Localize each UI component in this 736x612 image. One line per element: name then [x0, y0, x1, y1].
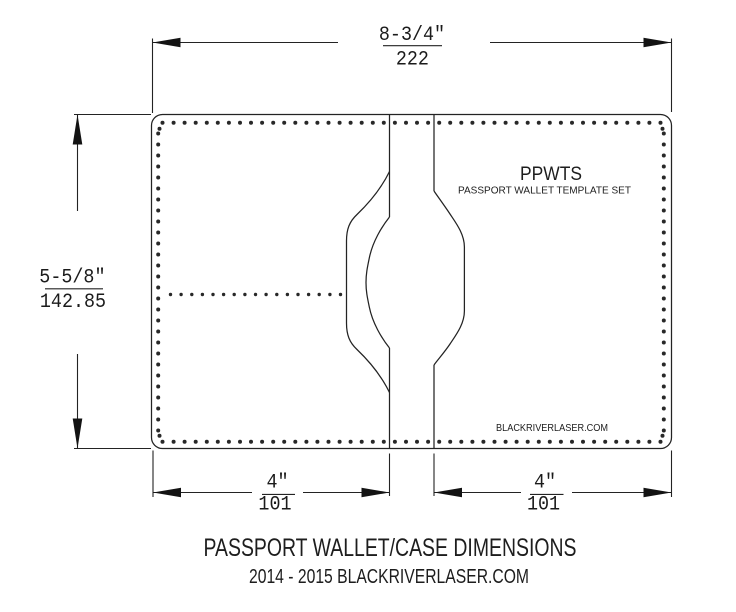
svg-text:PPWTS: PPWTS — [520, 164, 582, 185]
svg-text:8-3/4": 8-3/4" — [379, 23, 445, 46]
svg-text:101: 101 — [258, 493, 291, 516]
svg-text:2014 - 2015 BLACKRIVERLASER.CO: 2014 - 2015 BLACKRIVERLASER.COM — [249, 566, 529, 588]
svg-text:PASSPORT WALLET TEMPLATE SET: PASSPORT WALLET TEMPLATE SET — [458, 185, 632, 197]
svg-text:5-5/8": 5-5/8" — [39, 266, 105, 289]
svg-text:4": 4" — [534, 471, 556, 494]
svg-text:BLACKRIVERLASER.COM: BLACKRIVERLASER.COM — [496, 422, 608, 434]
svg-text:142.85: 142.85 — [40, 290, 106, 313]
svg-text:4": 4" — [266, 471, 288, 494]
svg-text:PASSPORT WALLET/CASE DIMENSION: PASSPORT WALLET/CASE DIMENSIONS — [204, 534, 577, 562]
svg-text:101: 101 — [527, 493, 560, 516]
svg-text:222: 222 — [396, 48, 429, 71]
